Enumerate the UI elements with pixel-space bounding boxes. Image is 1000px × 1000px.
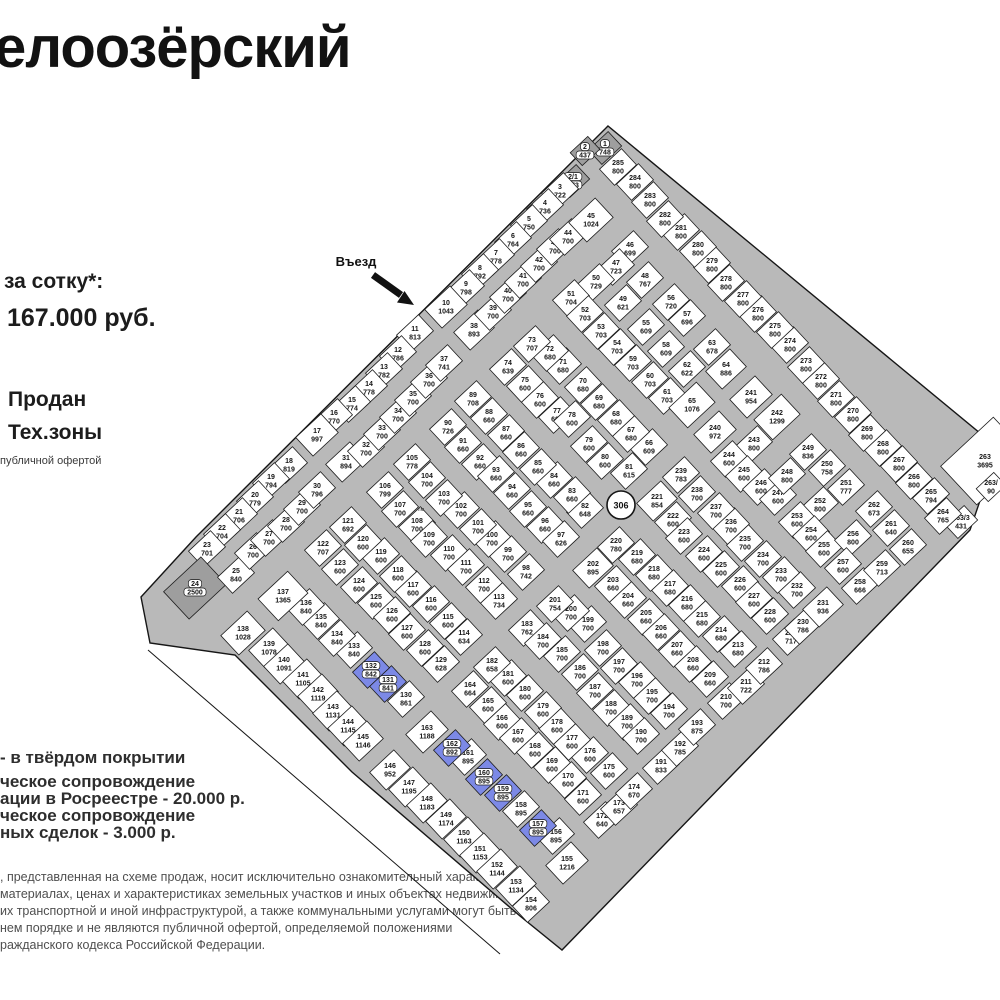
plot-label: 97 xyxy=(557,532,565,539)
plot-label: 58 xyxy=(662,342,670,349)
plot-label: 660 xyxy=(687,666,699,673)
plot-label: 112 xyxy=(478,578,489,585)
plot-label: 42 xyxy=(535,257,543,264)
plot-label: 218 xyxy=(648,566,660,573)
plot-label: 134 xyxy=(331,631,343,638)
plot-label: 800 xyxy=(675,234,687,241)
plot-label: 183 xyxy=(521,621,533,628)
plot-label: 840 xyxy=(300,609,312,616)
plot-label: 806 xyxy=(525,906,537,913)
plot-label: 165 xyxy=(482,698,494,705)
plot-label: 660 xyxy=(607,586,619,593)
plot-label: 41 xyxy=(519,273,527,280)
plot-label: 700 xyxy=(392,417,404,424)
plot-label: 640 xyxy=(885,530,897,537)
plot-label: 626 xyxy=(555,541,567,548)
plot-label: 170 xyxy=(562,773,574,780)
plot-label: 243 xyxy=(748,437,760,444)
plot-label: 184 xyxy=(537,634,549,641)
plot-label: 98 xyxy=(522,565,530,572)
plot-label: 785 xyxy=(674,750,686,757)
plot-label: 707 xyxy=(317,550,329,557)
plot-label: 78 xyxy=(568,412,576,419)
plot-label: 92 xyxy=(476,455,484,462)
plot-label: 27 xyxy=(265,531,273,538)
plot-label: 274 xyxy=(784,338,796,345)
plot-label: 267 xyxy=(893,457,905,464)
plot-label: 777 xyxy=(840,489,852,496)
plot-label: 678 xyxy=(706,349,718,356)
plot-label: 600 xyxy=(678,538,690,545)
sales-scheme-page: елоозёрский за сотку*: 167.000 руб. Прод… xyxy=(0,0,1000,1000)
plot-label: 50 xyxy=(592,275,600,282)
plot-label: 191 xyxy=(655,759,667,766)
plot-label: 895 xyxy=(532,830,544,837)
plot-label: 600 xyxy=(357,545,369,552)
plot-label: 76 xyxy=(536,393,544,400)
plot-label: 800 xyxy=(784,347,796,354)
plot-label: 1091 xyxy=(276,666,292,673)
plot-label: 239 xyxy=(675,468,687,475)
plot-label: 600 xyxy=(748,602,760,609)
plot-label: 88 xyxy=(485,409,493,416)
plot-label: 278 xyxy=(720,276,732,283)
plot-label: 35 xyxy=(409,391,417,398)
plot-label: 232 xyxy=(791,583,803,590)
plot-label: 609 xyxy=(643,449,655,456)
plot-label: 660 xyxy=(671,651,683,658)
plot-label: 600 xyxy=(537,712,549,719)
plot-label: 800 xyxy=(814,507,826,514)
plot-label: 600 xyxy=(738,476,750,483)
plot-label: 57 xyxy=(683,311,691,318)
plot-label: 36 xyxy=(425,373,433,380)
plot-label: 600 xyxy=(551,728,563,735)
plot-label: 895 xyxy=(587,570,599,577)
plot-label: 18 xyxy=(285,458,293,465)
plot-label: 259 xyxy=(876,561,888,568)
plot-label: 600 xyxy=(519,386,531,393)
plot-label: 250 xyxy=(821,461,833,468)
plot-label: 143 xyxy=(327,704,339,711)
plot-label: 600 xyxy=(764,618,776,625)
plot-label: 126 xyxy=(386,608,398,615)
plot-label: 703 xyxy=(579,316,591,323)
plot-label: 703 xyxy=(595,333,607,340)
plot-label: 600 xyxy=(482,707,494,714)
plot-label: 660 xyxy=(548,482,560,489)
plot-label: 182 xyxy=(486,658,498,665)
plot-label: 175 xyxy=(603,764,615,771)
plot-label: 101 xyxy=(472,520,484,527)
plot-label: 96 xyxy=(541,518,549,525)
plot-label: 609 xyxy=(640,329,652,336)
plot-label: 680 xyxy=(557,368,569,375)
plot-label: 86 xyxy=(517,443,525,450)
plot-label: 231 xyxy=(817,600,829,607)
plot-label: 141 xyxy=(297,672,309,679)
plot-label: 174 xyxy=(628,784,640,791)
plot-label: 700 xyxy=(438,500,450,507)
plot-label: 895 xyxy=(462,759,474,766)
plot-label: 600 xyxy=(583,446,595,453)
plot-label: 111 xyxy=(461,560,472,567)
plot-label: 74 xyxy=(504,360,512,367)
plot-label: 660 xyxy=(539,527,551,534)
plot-label: 157 xyxy=(532,821,544,828)
plot-label: 216 xyxy=(681,596,693,603)
plot-label: 800 xyxy=(847,417,859,424)
plot-label: 89 xyxy=(469,392,477,399)
plot-label: 700 xyxy=(574,674,586,681)
plot-label: 794 xyxy=(265,483,277,490)
plot-label: 212 xyxy=(758,659,770,666)
plot-label: 56 xyxy=(667,295,675,302)
plot-label: 122 xyxy=(317,541,329,548)
plot-label: 167 xyxy=(512,729,524,736)
plot-label: 680 xyxy=(715,636,727,643)
plot-label: 673 xyxy=(868,511,880,518)
plot-label: 622 xyxy=(681,371,693,378)
plot-label: 168 xyxy=(529,743,541,750)
plot-label: 131 xyxy=(382,677,394,684)
plot-label: 227 xyxy=(748,593,760,600)
plot-label: 213 xyxy=(732,642,744,649)
plot-label: 600 xyxy=(386,617,398,624)
plot-label: 84 xyxy=(550,473,558,480)
plot-label: 139 xyxy=(263,641,275,648)
plot-label: 275 xyxy=(769,323,781,330)
plot-label: 6 xyxy=(511,233,515,240)
plot-label: 700 xyxy=(710,513,722,520)
plot-label: 813 xyxy=(409,335,421,342)
plot-label: 211 xyxy=(740,679,751,686)
plot-label: 273 xyxy=(800,358,812,365)
plot-label: 80 xyxy=(601,454,609,461)
plot-label: 148 xyxy=(421,796,433,803)
plot-label: 680 xyxy=(610,420,622,427)
plot-label: 748 xyxy=(599,150,611,157)
plot-label: 29 xyxy=(298,500,306,507)
plot-label: 199 xyxy=(582,617,594,624)
plot-label: 256 xyxy=(847,531,859,538)
plot-label: 116 xyxy=(425,597,436,604)
plot-label: 9 xyxy=(464,281,468,288)
plot-label: 44 xyxy=(564,230,572,237)
plot-label: 700 xyxy=(247,553,259,560)
plot-label: 700 xyxy=(582,626,594,633)
plot-label: 113 xyxy=(493,594,504,601)
plot-label: 700 xyxy=(565,615,577,622)
plot-label: 734 xyxy=(493,603,505,610)
plot-label: 600 xyxy=(584,757,596,764)
plot-label: 233 xyxy=(775,568,787,575)
plot-label: 265 xyxy=(925,489,937,496)
plot-label: 800 xyxy=(612,169,624,176)
svg-text:306: 306 xyxy=(613,501,628,511)
plot-label: 1153 xyxy=(472,855,487,862)
plot-label: 198 xyxy=(597,641,609,648)
plot-label: 46 xyxy=(626,242,634,249)
plot-label: 102 xyxy=(455,503,467,510)
plot-label: 23 xyxy=(203,542,211,549)
plot-label: 1119 xyxy=(311,696,326,703)
plot-label: 169 xyxy=(546,758,558,765)
plot-label: 1365 xyxy=(275,598,291,605)
plot-label: 600 xyxy=(419,650,431,657)
plot-label: 51 xyxy=(567,291,575,298)
plot-label: 819 xyxy=(283,467,295,474)
plot-label: 258 xyxy=(854,579,866,586)
plot-label: 68 xyxy=(612,411,620,418)
plot-label: 600 xyxy=(534,402,546,409)
plot-label: 81 xyxy=(625,464,633,471)
plot-label: 66 xyxy=(645,440,653,447)
plot-label: 138 xyxy=(237,626,249,633)
plot-label: 85 xyxy=(534,460,542,467)
plot-label: 282 xyxy=(659,212,671,219)
plot-label: 713 xyxy=(876,570,888,577)
plot-label: 1078 xyxy=(261,650,277,657)
plot-label: 895 xyxy=(497,795,509,802)
plot-label: 700 xyxy=(605,710,617,717)
plot-label: 52 xyxy=(581,307,589,314)
plot-label: 700 xyxy=(296,509,308,516)
plot-label: 660 xyxy=(457,447,469,454)
plot-label: 70 xyxy=(579,378,587,385)
plot-label: 82 xyxy=(581,503,589,510)
plot-label: 800 xyxy=(692,251,704,258)
plot-label: 15 xyxy=(348,397,356,404)
plot-label: 836 xyxy=(802,454,814,461)
plot-label: 798 xyxy=(460,290,472,297)
plot-label: 94 xyxy=(508,484,516,491)
plot-label: 700 xyxy=(533,266,545,273)
plot-label: 277 xyxy=(737,292,749,299)
plot-label: 71 xyxy=(559,359,567,366)
plot-label: 600 xyxy=(407,591,419,598)
plot-label: 700 xyxy=(613,668,625,675)
plot-label: 660 xyxy=(515,452,527,459)
plot-label: 152 xyxy=(491,862,503,869)
plot-label: 666 xyxy=(854,588,866,595)
plot-label: 228 xyxy=(764,609,776,616)
plot-label: 700 xyxy=(407,400,419,407)
plot-label: 153 xyxy=(510,879,522,886)
plot-map: 174824372/137337224736575067647778879297… xyxy=(0,0,1000,1000)
plot-label: 621 xyxy=(617,305,629,312)
plot-label: 185 xyxy=(556,647,568,654)
plot-label: 124 xyxy=(353,578,365,585)
plot-label: 5 xyxy=(527,216,531,223)
plot-label: 700 xyxy=(562,239,574,246)
plot-label: 700 xyxy=(646,698,658,705)
plot-label: 680 xyxy=(631,559,643,566)
plot-label: 107 xyxy=(394,502,406,509)
plot-label: 269 xyxy=(861,426,873,433)
plot-label: 225 xyxy=(715,562,727,569)
plot-label: 892 xyxy=(446,750,458,757)
plot-label: 680 xyxy=(577,387,589,394)
plot-label: 207 xyxy=(671,642,683,649)
plot-label: 700 xyxy=(455,512,467,519)
plot-label: 778 xyxy=(406,464,418,471)
plot-label: 3 xyxy=(558,184,562,191)
plot-label: 271 xyxy=(830,392,842,399)
plot-label: 655 xyxy=(902,549,914,556)
entrance-label: Въезд xyxy=(336,254,378,269)
plot-label: 192 xyxy=(674,741,686,748)
entrance-arrow-icon xyxy=(373,275,414,305)
plot-label: 25 xyxy=(232,568,240,575)
plot-label: 800 xyxy=(861,435,873,442)
plot-label: 600 xyxy=(566,744,578,751)
plot-label: 704 xyxy=(565,300,577,307)
plot-label: 700 xyxy=(635,738,647,745)
plot-label: 767 xyxy=(639,282,651,289)
plot-label: 32 xyxy=(362,442,370,449)
plot-label: 177 xyxy=(566,735,578,742)
plot-label: 8 xyxy=(478,265,482,272)
plot-label: 680 xyxy=(544,355,556,362)
plot-label: 147 xyxy=(403,780,415,787)
plot-label: 628 xyxy=(435,666,447,673)
plot-label: 205 xyxy=(640,610,652,617)
plot-label: 600 xyxy=(334,569,346,576)
plot-label: 1174 xyxy=(438,821,453,828)
plot-label: 215 xyxy=(696,612,708,619)
plot-label: 600 xyxy=(546,767,558,774)
plot-label: 700 xyxy=(663,713,675,720)
plot-label: 707 xyxy=(526,346,538,353)
plot-label: 634 xyxy=(458,639,470,646)
plot-label: 894 xyxy=(340,464,352,471)
plot-label: 4 xyxy=(543,200,547,207)
plot-label: 72 xyxy=(546,346,554,353)
plot-label: 972 xyxy=(709,434,721,441)
plot-label: 794 xyxy=(925,498,937,505)
plot-label: 61 xyxy=(663,389,671,396)
plot-label: 722 xyxy=(740,688,752,695)
plot-label: 754 xyxy=(549,606,561,613)
plot-label: 150 xyxy=(458,830,470,837)
plot-label: 17 xyxy=(313,428,321,435)
plot-label: 783 xyxy=(675,477,687,484)
plot-label: 262 xyxy=(868,502,880,509)
plot-label: 144 xyxy=(342,719,354,726)
plot-label: 700 xyxy=(739,545,751,552)
plot-label: 680 xyxy=(732,651,744,658)
plot-label: 800 xyxy=(877,450,889,457)
plot-label: 720 xyxy=(665,304,677,311)
plot-label: 700 xyxy=(775,577,787,584)
plot-label: 55 xyxy=(642,320,650,327)
plot-label: 281 xyxy=(675,225,687,232)
plot-label: 248 xyxy=(781,469,793,476)
plot-label: 251 xyxy=(840,480,852,487)
plot-label: 39 xyxy=(489,305,497,312)
plot-label: 257 xyxy=(837,559,849,566)
plot-label: 162 xyxy=(446,741,458,748)
plot-label: 140 xyxy=(278,657,290,664)
plot-label: 110 xyxy=(443,546,454,553)
plot-label: 22 xyxy=(218,525,226,532)
plot-label: 135 xyxy=(315,614,327,621)
plot-label: 217 xyxy=(664,581,676,588)
plot-label: 700 xyxy=(691,496,703,503)
plot-label: 703 xyxy=(627,365,639,372)
plot-label: 285 xyxy=(612,160,624,167)
plot-label: 166 xyxy=(496,715,508,722)
plot-label: 75 xyxy=(521,377,529,384)
plot-label: 1216 xyxy=(559,865,575,872)
plot-label: 45 xyxy=(587,213,595,220)
plot-label: 241 xyxy=(745,390,757,397)
plot-label: 90 xyxy=(987,489,995,496)
plot-label: 93 xyxy=(492,467,500,474)
plot-label: 130 xyxy=(400,692,412,699)
plot-label: 660 xyxy=(522,511,534,518)
plot-label: 660 xyxy=(490,476,502,483)
plot-label: 700 xyxy=(486,541,498,548)
plot-label: 238 xyxy=(691,487,703,494)
plot-label: 800 xyxy=(752,316,764,323)
plot-label: 600 xyxy=(562,782,574,789)
plot-label: 208 xyxy=(687,657,699,664)
plot-label: 700 xyxy=(502,556,514,563)
plot-label: 700 xyxy=(589,693,601,700)
plot-label: 700 xyxy=(443,555,455,562)
plot-label: 1134 xyxy=(508,888,523,895)
plot-label: 270 xyxy=(847,408,859,415)
plot-label: 692 xyxy=(342,527,354,534)
plot-label: 895 xyxy=(515,811,527,818)
plot-label: 1299 xyxy=(769,419,785,426)
plot-label: 264 xyxy=(937,509,949,516)
plot-label: 246 xyxy=(755,480,767,487)
plot-label: 800 xyxy=(720,285,732,292)
plot-label: 703 xyxy=(644,382,656,389)
plot-label: 79 xyxy=(585,437,593,444)
plot-label: 87 xyxy=(502,426,510,433)
plot-label: 245 xyxy=(738,467,750,474)
plot-label: 1183 xyxy=(419,805,434,812)
plot-label: 841 xyxy=(382,686,394,693)
plot-label: 670 xyxy=(628,793,640,800)
plot-label: 701 xyxy=(201,551,213,558)
plot-label: 104 xyxy=(421,473,433,480)
plot-label: 263 xyxy=(979,454,991,461)
plot-label: 840 xyxy=(348,652,360,659)
plot-label: 136 xyxy=(300,600,312,607)
plot-label: 954 xyxy=(745,399,757,406)
plot-label: 936 xyxy=(817,609,829,616)
plot-label: 206 xyxy=(655,625,667,632)
plot-label: 800 xyxy=(644,202,656,209)
plot-label: 700 xyxy=(360,451,372,458)
plot-label: 700 xyxy=(423,541,435,548)
plot-label: 129 xyxy=(435,657,447,664)
plot-label: 37 xyxy=(440,356,448,363)
plot-label: 145 xyxy=(357,734,369,741)
plot-label: 109 xyxy=(423,532,435,539)
plot-label: 118 xyxy=(392,567,403,574)
plot-label: 160 xyxy=(478,770,490,777)
plot-label: 600 xyxy=(392,576,404,583)
plot-label: 223 xyxy=(678,529,690,536)
plot-label: 600 xyxy=(519,695,531,702)
plot-label: 600 xyxy=(698,556,710,563)
